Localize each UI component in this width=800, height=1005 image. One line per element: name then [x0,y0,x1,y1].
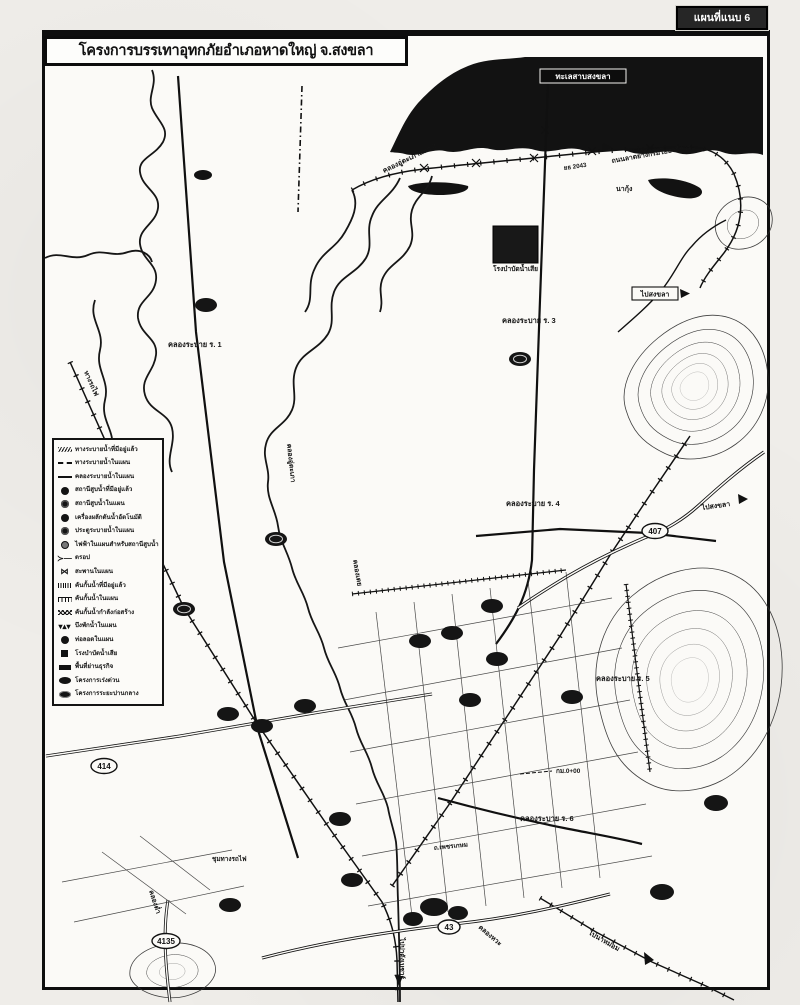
legend-item: คลองระบายน้ำในแผน [57,470,160,484]
existing-dike-icon [57,581,72,591]
midterm-project-icon [57,689,72,699]
legend-item: คันกั้นน้ำกำลังก่อสร้าง [57,606,160,620]
legend-item: คันกั้นน้ำที่มีอยู่แล้ว [57,579,160,593]
legend-item: โครงการระยะปานกลาง [57,688,160,702]
wastewater-plant-icon [57,649,72,659]
legend-item: ▾▴▾ บึงพักน้ำในแผน [57,620,160,634]
planned-canal-line-icon [57,472,72,482]
dike-under-construction-icon [57,608,72,618]
urgent-project-icon [57,676,72,686]
legend-item: โครงการเร่งด่วน [57,674,160,688]
planned-drainage-line-icon [57,458,72,468]
legend-item: ⋈ สะพานในแผน [57,565,160,579]
legend-item: โรงบำบัดน้ำเสีย [57,647,160,661]
attachment-tag: แผนที่แนบ 6 [676,6,768,30]
legend-box: ทางระบายน้ำที่มีอยู่แล้ว ทางระบายน้ำในแผ… [52,438,164,706]
legend-item: เครื่องผลักดันน้ำอัตโนมัติ [57,511,160,525]
legend-item: ประตูระบายน้ำในแผน [57,525,160,539]
legend-item: ไฟฟ้าในแผนสำหรับสถานีสูบน้ำ [57,538,160,552]
legend-item: ท่อลอดในแผน [57,633,160,647]
drop-structure-icon: ≻— [57,554,72,564]
legend-item: พื้นที่ย่านธุรกิจ [57,661,160,675]
existing-pump-station-icon [57,486,72,496]
legend-item: ทางระบายน้ำในแผน [57,457,160,471]
pump-electricity-icon [57,540,72,550]
auto-water-propulsion-icon [57,513,72,523]
legend-item: สถานีสูบน้ำที่มีอยู่แล้ว [57,484,160,498]
legend-item: ≻— ดรอป [57,552,160,566]
legend-item: สถานีสูบน้ำในแผน [57,497,160,511]
planned-dike-icon [57,594,72,604]
planned-retention-pond-icon: ▾▴▾ [57,622,72,632]
business-district-icon [57,662,72,672]
planned-sluice-gate-icon [57,526,72,536]
legend-item: ทางระบายน้ำที่มีอยู่แล้ว [57,443,160,457]
planned-culvert-icon [57,635,72,645]
page-title: โครงการบรรเทาอุทกภัยอำเภอหาดใหญ่ จ.สงขลา [44,36,408,66]
legend-item: คันกั้นน้ำในแผน [57,593,160,607]
planned-pump-station-icon [57,499,72,509]
existing-drainage-line-icon [57,445,72,455]
planned-bridge-icon: ⋈ [57,567,72,577]
